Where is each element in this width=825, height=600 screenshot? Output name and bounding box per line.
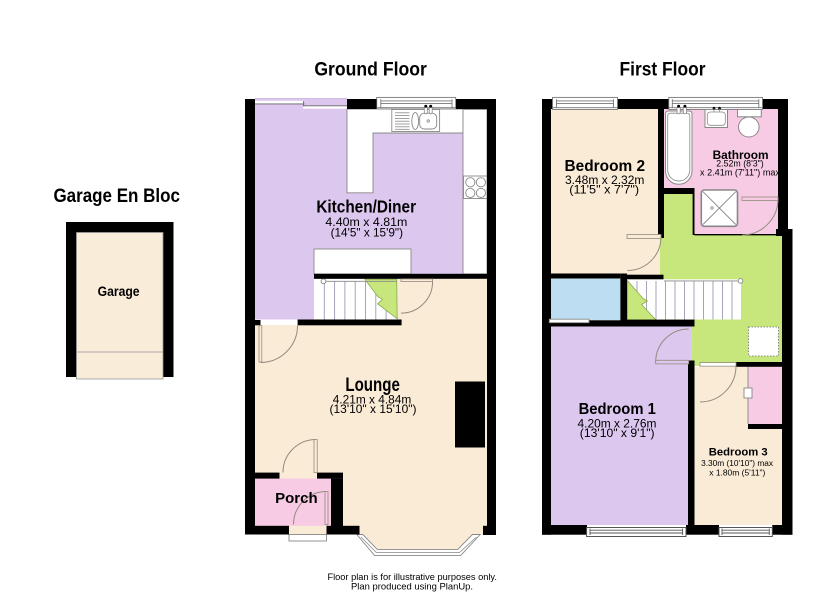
svg-text:x 2.41m (7'11") max: x 2.41m (7'11") max <box>700 168 780 178</box>
svg-text:First Floor: First Floor <box>620 59 706 81</box>
svg-text:Porch: Porch <box>275 491 318 507</box>
svg-text:(13'10" x 9'1"): (13'10" x 9'1") <box>580 426 655 440</box>
svg-text:3.30m (10'10") max: 3.30m (10'10") max <box>701 458 774 468</box>
svg-text:(13'10" x 15'10"): (13'10" x 15'10") <box>330 402 417 416</box>
svg-text:Ground Floor: Ground Floor <box>314 59 427 81</box>
svg-text:Floor plan is for illustrative: Floor plan is for illustrative purposes … <box>327 572 497 582</box>
svg-text:Plan produced using PlanUp.: Plan produced using PlanUp. <box>351 582 473 592</box>
svg-text:Bedroom 1: Bedroom 1 <box>579 401 657 418</box>
svg-text:Kitchen/Diner: Kitchen/Diner <box>316 196 416 216</box>
svg-text:x 1.80m (5'11"): x 1.80m (5'11") <box>709 467 765 477</box>
svg-text:(14'5" x 15'9"): (14'5" x 15'9") <box>331 225 403 239</box>
svg-text:Garage En Bloc: Garage En Bloc <box>53 185 180 207</box>
svg-text:Bedroom 3: Bedroom 3 <box>709 446 768 458</box>
svg-text:Garage: Garage <box>98 284 140 299</box>
svg-text:(11'5" x 7'7"): (11'5" x 7'7") <box>569 182 639 196</box>
